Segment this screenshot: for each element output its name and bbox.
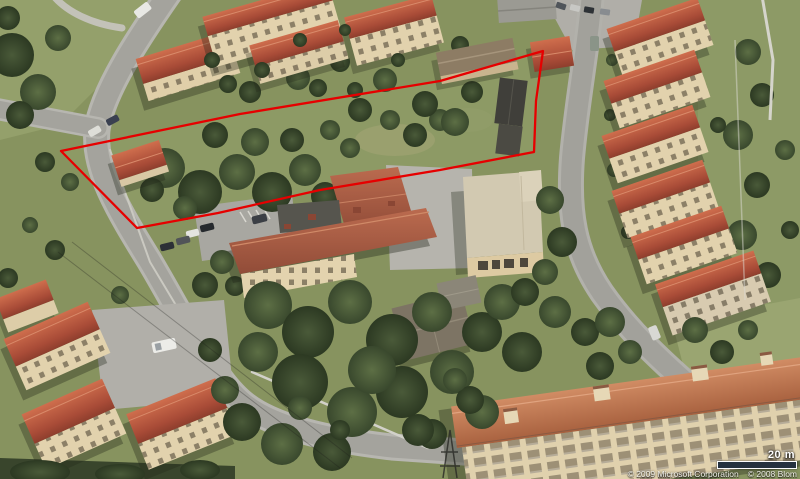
map-viewport[interactable]: 20 m © 2009 Microsoft Corporation© 2008 … [0,0,800,479]
building-ruin-1 [494,77,527,126]
scale-label: 20 m [768,449,795,461]
building-house-red [525,36,575,79]
copyright-microsoft: © 2009 Microsoft Corporation [628,469,739,479]
building-gym [451,170,544,278]
building-ruin-2 [495,124,522,157]
scale-bar [717,461,797,469]
aerial-photo [0,0,800,479]
copyright-imagery: © 2008 Blom [748,469,797,479]
copyright-text: © 2009 Microsoft Corporation© 2008 Blom [619,469,797,479]
building-garage-gray [497,0,557,23]
